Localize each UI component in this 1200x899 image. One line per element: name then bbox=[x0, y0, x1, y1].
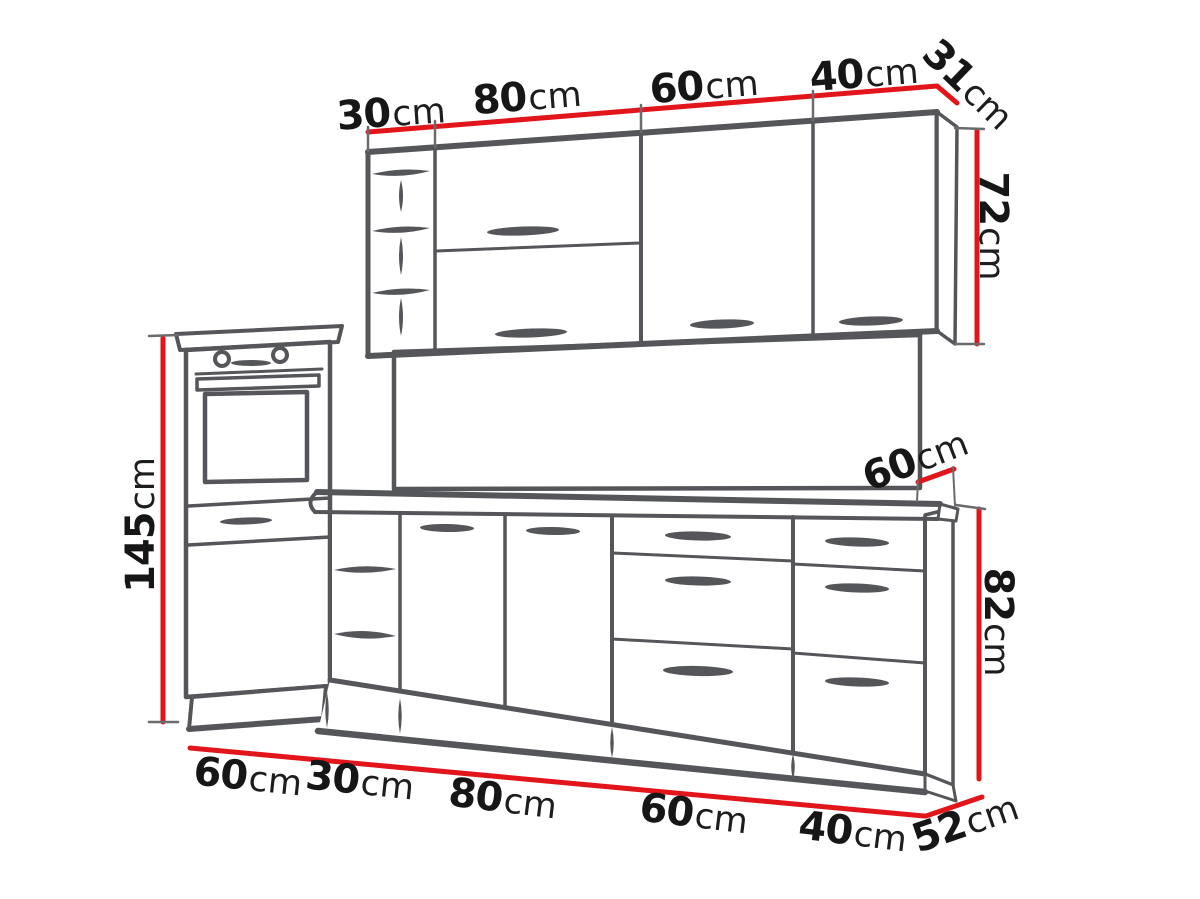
oven-handle-bar bbox=[197, 375, 319, 390]
kitchen-dimension-diagram: 30cm 80cm 60cm 40cm 31cm 72cm 145cm 60cm… bbox=[0, 0, 1200, 899]
wall-cabinet-side-panel bbox=[937, 112, 957, 344]
dim-label-base-60b: 60cm bbox=[637, 785, 751, 844]
dimension-tick bbox=[955, 128, 984, 129]
dimension-tick bbox=[953, 467, 955, 506]
oven-window bbox=[205, 392, 307, 482]
dim-label-base-height: 82cm bbox=[975, 567, 1021, 676]
base-side-panel bbox=[925, 508, 953, 785]
worktop-top-edge bbox=[317, 492, 940, 504]
dimension-tick bbox=[149, 335, 178, 336]
diagram-canvas: 30cm 80cm 60cm 40cm 31cm 72cm 145cm 60cm… bbox=[0, 0, 1200, 899]
dimension-tick bbox=[956, 505, 985, 509]
dim-label-base-30: 30cm bbox=[303, 752, 416, 809]
backsplash-panel bbox=[394, 335, 920, 489]
dim-label-wall-30: 30cm bbox=[335, 86, 447, 139]
dim-label-wall-60: 60cm bbox=[648, 59, 760, 113]
dim-label-base-depth: 52cm bbox=[906, 783, 1024, 862]
wall-cabinets bbox=[368, 112, 957, 356]
dim-label-tall-height: 145cm bbox=[118, 457, 164, 593]
dim-label-wall-40: 40cm bbox=[808, 47, 920, 101]
oven-display bbox=[231, 360, 271, 366]
base-cabinets bbox=[318, 508, 956, 801]
tall-oven-cabinet bbox=[176, 326, 342, 729]
